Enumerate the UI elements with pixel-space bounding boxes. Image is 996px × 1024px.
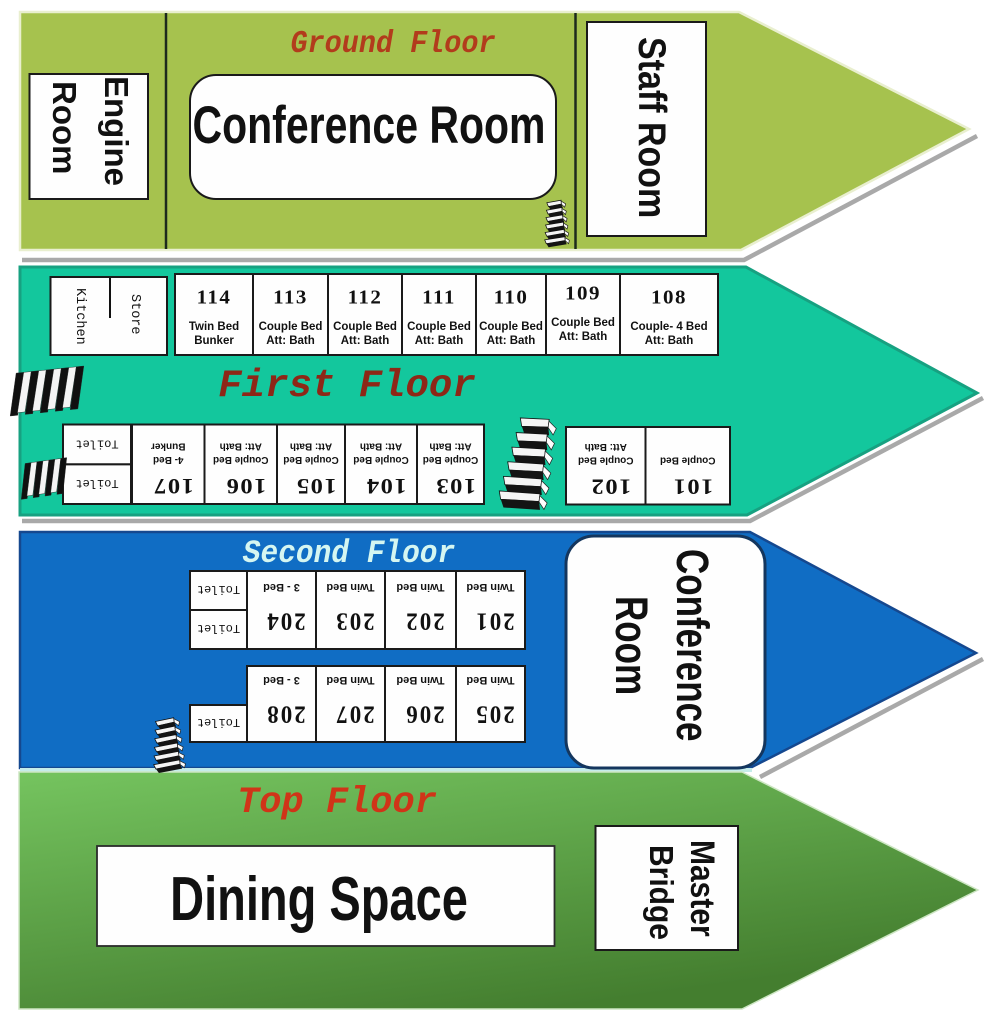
svg-text:204: 204 (265, 607, 305, 635)
svg-text:Twin Bed: Twin Bed (466, 581, 514, 593)
svg-text:206: 206 (404, 700, 444, 728)
svg-text:Ground Floor: Ground Floor (290, 26, 495, 62)
svg-text:Conference Room: Conference Room (193, 96, 546, 155)
svg-text:Dining Space: Dining Space (170, 863, 468, 933)
svg-text:Twin Bed: Twin Bed (466, 674, 514, 686)
svg-text:3 - Bed: 3 - Bed (263, 581, 300, 593)
svg-text:Twin Bed: Twin Bed (396, 581, 444, 593)
svg-text:Twin Bed: Twin Bed (326, 674, 374, 686)
svg-text:Room: Room (606, 596, 658, 695)
svg-text:Couple Bed: Couple Bed (259, 321, 323, 333)
svg-text:Att: Bath: Att: Bath (559, 331, 608, 343)
svg-text:112: 112 (348, 287, 383, 308)
svg-text:Couple Bed: Couple Bed (213, 454, 269, 465)
svg-text:110: 110 (494, 287, 529, 308)
svg-text:207: 207 (334, 700, 374, 728)
svg-text:108: 108 (651, 287, 687, 308)
svg-text:Att: Bath: Att: Bath (220, 441, 262, 452)
svg-text:Att: Bath: Att: Bath (429, 441, 471, 452)
svg-text:Att: Bath: Att: Bath (290, 441, 332, 452)
svg-text:Couple Bed: Couple Bed (551, 317, 615, 329)
svg-text:Master: Master (684, 840, 722, 937)
svg-text:4- Bed: 4- Bed (153, 454, 184, 465)
svg-text:Kitchen: Kitchen (72, 288, 87, 345)
svg-text:Toilet: Toilet (197, 582, 240, 596)
svg-text:Couple Bed: Couple Bed (353, 454, 409, 465)
svg-text:205: 205 (474, 700, 514, 728)
svg-text:Att: Bath: Att: Bath (266, 335, 315, 347)
svg-text:Couple Bed: Couple Bed (407, 321, 471, 333)
svg-text:Staff Room: Staff Room (630, 37, 674, 218)
svg-text:102: 102 (590, 474, 631, 499)
svg-text:101: 101 (672, 474, 713, 499)
svg-text:Att: Bath: Att: Bath (360, 441, 402, 452)
svg-text:114: 114 (197, 287, 232, 308)
svg-text:Att: Bath: Att: Bath (415, 335, 464, 347)
svg-text:Att: Bath: Att: Bath (585, 441, 627, 452)
svg-text:103: 103 (435, 473, 476, 498)
svg-text:Att: Bath: Att: Bath (645, 335, 694, 347)
svg-text:203: 203 (334, 607, 374, 635)
svg-text:Toilet: Toilet (75, 437, 118, 451)
svg-text:Couple Bed: Couple Bed (333, 321, 397, 333)
svg-text:105: 105 (295, 473, 336, 498)
svg-text:Store: Store (127, 294, 142, 335)
svg-text:Att: Bath: Att: Bath (341, 335, 390, 347)
svg-text:Bunker: Bunker (194, 335, 234, 347)
svg-text:104: 104 (365, 473, 406, 498)
svg-text:Top Floor: Top Floor (237, 782, 437, 824)
svg-text:Room: Room (46, 81, 83, 175)
svg-text:106: 106 (225, 473, 266, 498)
svg-text:109: 109 (565, 283, 601, 304)
svg-text:Twin Bed: Twin Bed (189, 321, 239, 333)
svg-text:Bridge: Bridge (643, 845, 681, 940)
svg-text:Att: Bath: Att: Bath (487, 335, 536, 347)
svg-text:3 - Bed: 3 - Bed (263, 674, 300, 686)
svg-text:107: 107 (153, 473, 194, 498)
svg-text:208: 208 (265, 700, 305, 728)
svg-text:Toilet: Toilet (75, 476, 118, 490)
svg-text:Engine: Engine (98, 76, 135, 186)
svg-text:Couple Bed: Couple Bed (660, 455, 716, 466)
svg-text:Second Floor: Second Floor (243, 536, 455, 573)
svg-text:Conference: Conference (667, 549, 719, 741)
svg-text:113: 113 (273, 287, 308, 308)
svg-text:Twin Bed: Twin Bed (326, 581, 374, 593)
svg-text:Couple Bed: Couple Bed (423, 454, 479, 465)
svg-text:201: 201 (474, 607, 514, 635)
svg-text:Bunker: Bunker (151, 441, 186, 452)
svg-text:111: 111 (422, 287, 456, 308)
svg-text:202: 202 (404, 607, 444, 635)
svg-text:Couple Bed: Couple Bed (479, 321, 543, 333)
svg-text:First Floor: First Floor (218, 364, 475, 408)
svg-text:Couple Bed: Couple Bed (283, 454, 339, 465)
svg-text:Toilet: Toilet (197, 715, 240, 729)
svg-text:Couple- 4 Bed: Couple- 4 Bed (630, 321, 707, 333)
svg-text:Toilet: Toilet (197, 621, 240, 635)
svg-text:Twin Bed: Twin Bed (396, 674, 444, 686)
svg-text:Couple Bed: Couple Bed (578, 455, 634, 466)
